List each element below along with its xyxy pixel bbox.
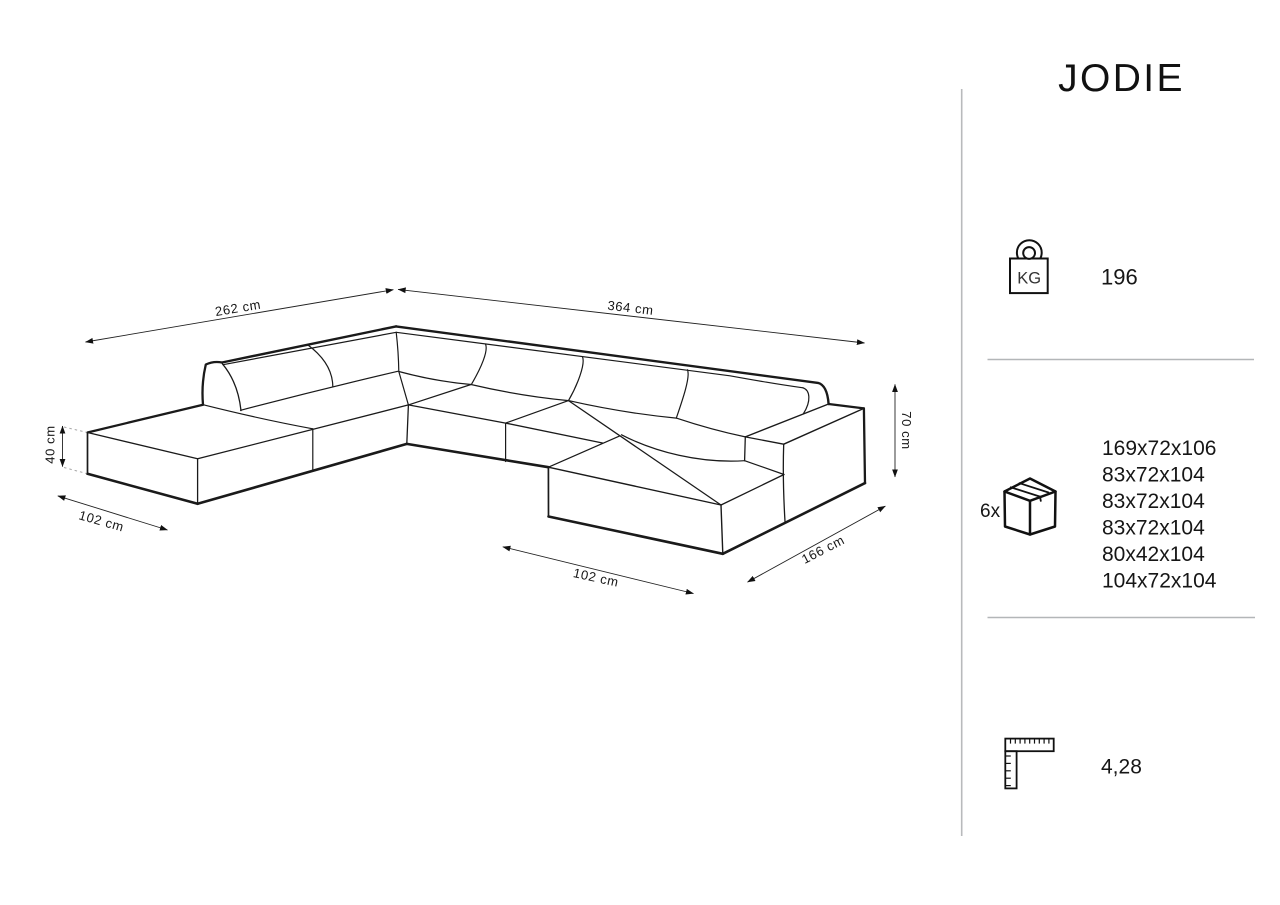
svg-text:KG: KG	[1017, 270, 1041, 288]
svg-text:70 cm: 70 cm	[899, 411, 914, 449]
svg-text:83x72x104: 83x72x104	[1102, 517, 1205, 540]
svg-text:83x72x104: 83x72x104	[1102, 464, 1205, 487]
svg-text:102 cm: 102 cm	[77, 507, 126, 534]
svg-text:104x72x104: 104x72x104	[1102, 570, 1217, 593]
svg-text:166 cm: 166 cm	[799, 532, 847, 567]
svg-text:80x42x104: 80x42x104	[1102, 543, 1205, 566]
svg-text:6x: 6x	[980, 501, 1001, 522]
svg-text:4,28: 4,28	[1101, 756, 1142, 779]
svg-text:40 cm: 40 cm	[43, 425, 58, 463]
svg-text:102 cm: 102 cm	[572, 565, 620, 590]
svg-text:JODIE: JODIE	[1058, 57, 1185, 100]
svg-text:169x72x106: 169x72x106	[1102, 437, 1216, 460]
svg-text:364 cm: 364 cm	[607, 298, 655, 318]
svg-text:83x72x104: 83x72x104	[1102, 490, 1205, 513]
svg-text:196: 196	[1101, 264, 1138, 289]
